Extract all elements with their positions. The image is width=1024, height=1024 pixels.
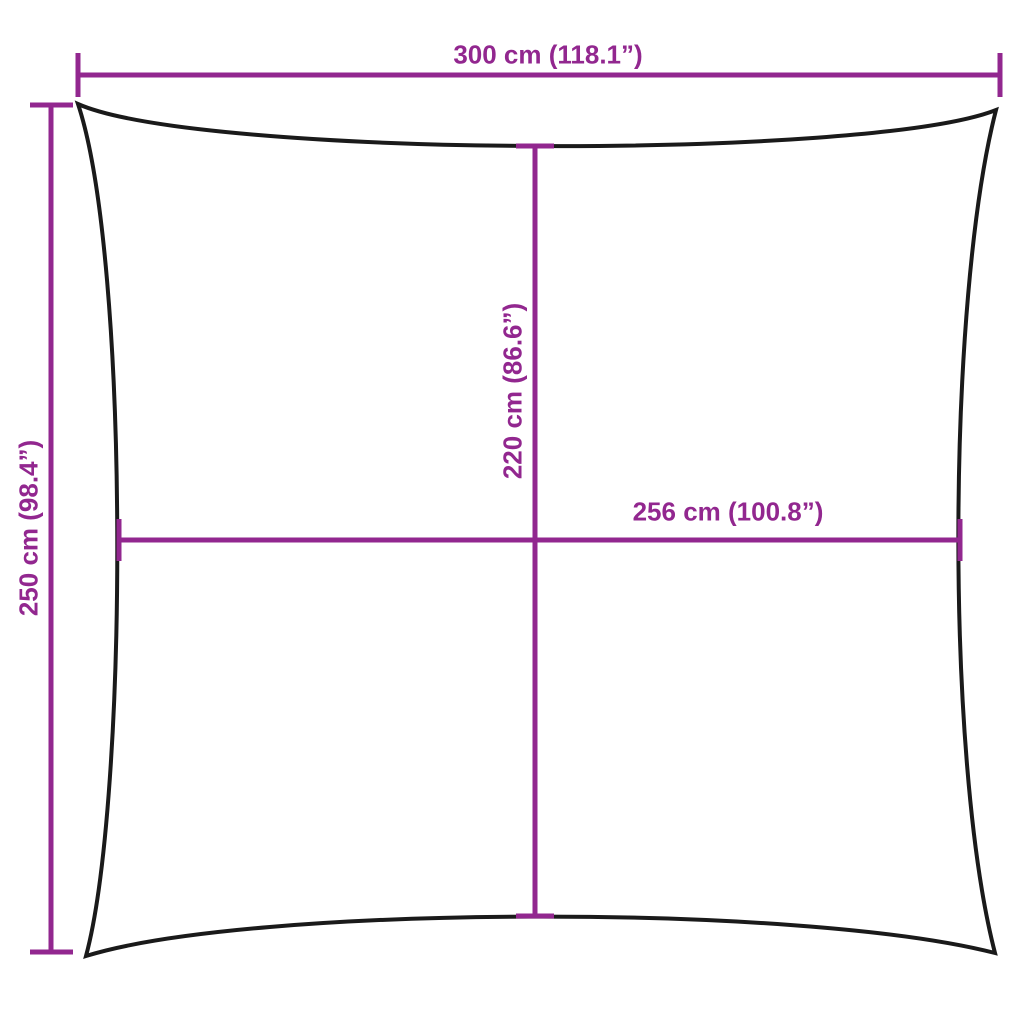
center-width-dimension-line [119,519,960,561]
center-height-label: 220 cm (86.6”) [498,303,529,479]
center-width-label: 256 cm (100.8”) [633,497,824,528]
top-width-label: 300 cm (118.1”) [453,40,642,71]
product-dimension-diagram: 300 cm (118.1”) 250 cm (98.4”) 220 cm (8… [0,0,1024,1024]
center-height-dimension-line [516,146,554,916]
left-height-label: 250 cm (98.4”) [14,440,45,616]
diagram-canvas [0,0,1024,1024]
